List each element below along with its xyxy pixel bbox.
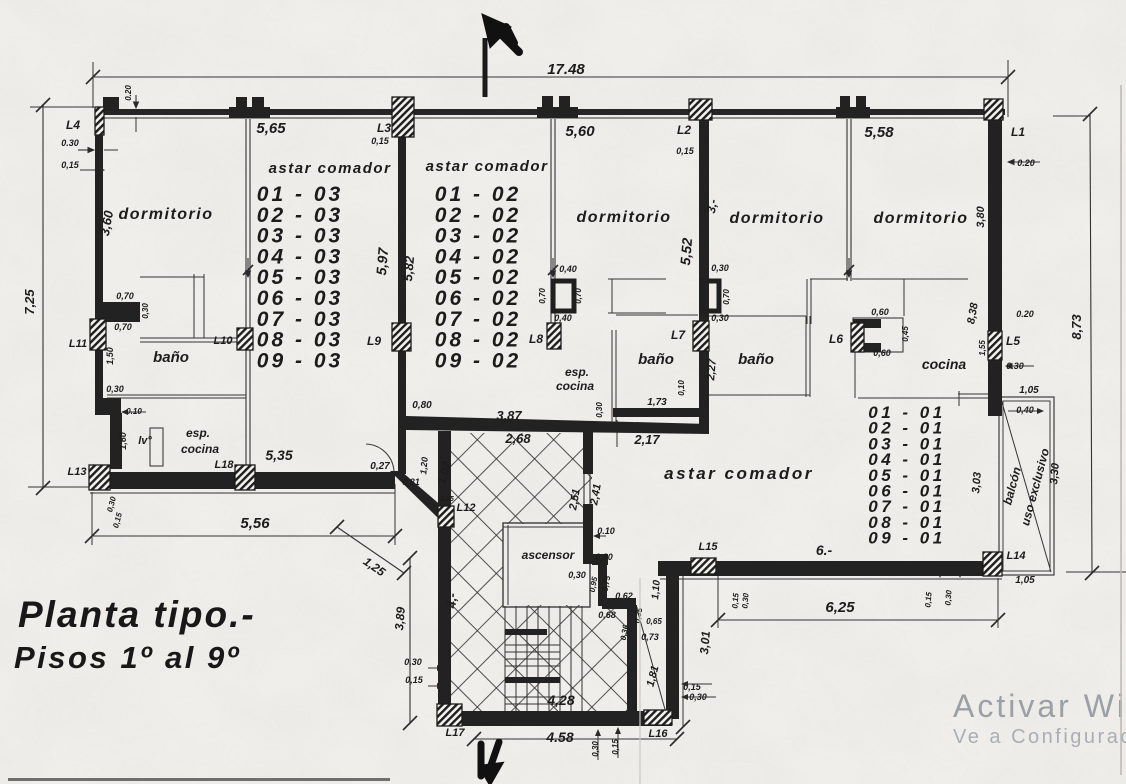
svg-text:L14: L14 [1007, 550, 1026, 562]
svg-text:0,60: 0,60 [873, 348, 891, 358]
svg-text:baño: baño [638, 351, 674, 368]
svg-text:dormitorio: dormitorio [577, 209, 672, 226]
svg-text:dormitorio: dormitorio [730, 210, 825, 227]
svg-text:1,50: 1,50 [105, 347, 115, 365]
svg-text:0,60: 0,60 [871, 307, 889, 317]
svg-text:0,70: 0,70 [114, 322, 132, 332]
svg-text:L12: L12 [457, 502, 476, 514]
svg-text:L13: L13 [68, 466, 87, 478]
svg-text:Ve a Configuración para activa: Ve a Configuración para activar Windows. [953, 726, 1126, 748]
svg-text:04 - 02: 04 - 02 [435, 245, 521, 268]
svg-text:0,73: 0,73 [641, 632, 659, 642]
svg-text:0,30: 0,30 [711, 263, 729, 273]
svg-text:L16: L16 [649, 728, 669, 740]
svg-text:7,25: 7,25 [22, 289, 37, 315]
svg-text:5,97: 5,97 [373, 246, 391, 276]
svg-text:1,05: 1,05 [1015, 575, 1035, 586]
svg-text:cocina: cocina [181, 442, 219, 456]
svg-text:L7: L7 [671, 328, 686, 342]
svg-text:0,30: 0,30 [106, 384, 124, 394]
svg-text:astar comador: astar comador [269, 160, 392, 177]
svg-text:01 - 02: 01 - 02 [435, 183, 521, 206]
svg-text:3,03: 3,03 [970, 472, 984, 494]
svg-text:0,70: 0,70 [116, 291, 134, 301]
svg-text:1,60: 1,60 [118, 432, 128, 450]
svg-text:0.10: 0.10 [597, 526, 615, 536]
svg-text:L5: L5 [1006, 334, 1020, 348]
svg-text:03 - 03: 03 - 03 [257, 225, 343, 248]
svg-text:0,15: 0,15 [61, 160, 80, 170]
svg-text:05 - 02: 05 - 02 [435, 266, 521, 289]
svg-text:0.20: 0.20 [1017, 158, 1035, 168]
svg-text:0,62: 0,62 [615, 591, 633, 601]
svg-text:08 - 02: 08 - 02 [435, 329, 521, 352]
svg-text:5,35: 5,35 [265, 447, 292, 463]
svg-text:esp.: esp. [565, 365, 589, 379]
svg-text:5,56: 5,56 [240, 515, 270, 532]
svg-text:baño: baño [153, 349, 189, 366]
svg-text:1,05: 1,05 [1019, 385, 1039, 396]
svg-text:Activar Windows: Activar Windows [953, 688, 1126, 724]
svg-text:0.30: 0.30 [1006, 361, 1024, 371]
svg-text:0,70: 0,70 [538, 288, 547, 304]
svg-text:0,30: 0,30 [591, 741, 600, 757]
svg-text:09 - 01: 09 - 01 [868, 529, 945, 548]
svg-text:0,27: 0,27 [370, 461, 390, 472]
svg-text:02 - 02: 02 - 02 [435, 204, 521, 227]
svg-text:03 - 02: 03 - 02 [435, 225, 521, 248]
svg-text:0,40: 0,40 [559, 264, 577, 274]
svg-text:5,65: 5,65 [256, 120, 286, 137]
svg-text:1,55: 1,55 [978, 340, 987, 356]
svg-text:06 - 02: 06 - 02 [435, 287, 521, 310]
svg-text:astar comador: astar comador [664, 464, 814, 483]
svg-text:17.48: 17.48 [547, 61, 585, 78]
svg-text:L15: L15 [699, 541, 719, 553]
svg-text:6.-: 6.- [816, 542, 833, 558]
svg-text:L9: L9 [367, 334, 381, 348]
svg-text:Pisos 1º al 9º: Pisos 1º al 9º [14, 640, 241, 675]
svg-text:0.10: 0.10 [126, 407, 142, 416]
svg-text:5,60: 5,60 [565, 123, 595, 140]
svg-text:0,05: 0,05 [440, 496, 454, 503]
svg-text:09 - 03: 09 - 03 [257, 349, 343, 372]
svg-text:2,68: 2,68 [504, 431, 531, 446]
svg-text:0,15: 0,15 [923, 591, 933, 608]
svg-text:0,30: 0,30 [595, 552, 613, 562]
svg-text:0,30: 0,30 [595, 402, 604, 418]
svg-text:0,81: 0,81 [402, 477, 420, 487]
svg-text:L4: L4 [66, 118, 80, 132]
svg-text:0.30: 0.30 [61, 138, 79, 148]
svg-text:0,15: 0,15 [371, 136, 390, 146]
svg-text:L17: L17 [446, 727, 466, 739]
svg-text:0,30: 0,30 [740, 592, 750, 609]
svg-text:4,-: 4,- [443, 592, 459, 609]
svg-text:0,15: 0,15 [730, 592, 740, 609]
svg-text:08 - 03: 08 - 03 [257, 329, 343, 352]
svg-text:0,40: 0,40 [1016, 405, 1034, 415]
svg-text:0,15: 0,15 [676, 146, 695, 156]
svg-text:4,28: 4,28 [546, 692, 574, 708]
svg-text:dormitorio: dormitorio [874, 210, 969, 227]
svg-text:0,45: 0,45 [901, 326, 910, 342]
svg-text:esp.: esp. [186, 426, 210, 440]
svg-text:cocina: cocina [922, 356, 967, 372]
svg-text:0,30: 0,30 [943, 589, 953, 606]
svg-text:L8: L8 [529, 332, 543, 346]
svg-text:0,70: 0,70 [574, 288, 583, 304]
svg-text:07 - 03: 07 - 03 [257, 308, 343, 331]
svg-text:0.20: 0.20 [124, 85, 133, 101]
svg-text:Planta tipo.-: Planta tipo.- [18, 594, 256, 635]
svg-text:09 - 02: 09 - 02 [435, 349, 521, 372]
svg-text:6,25: 6,25 [825, 599, 855, 616]
svg-text:0,80: 0,80 [412, 400, 432, 411]
svg-text:dormitorio: dormitorio [119, 206, 214, 223]
svg-text:L10: L10 [214, 335, 234, 347]
svg-text:0,30: 0,30 [141, 303, 150, 319]
svg-text:3,80: 3,80 [975, 205, 987, 227]
svg-text:baño: baño [738, 351, 774, 368]
svg-text:4.58: 4.58 [545, 729, 573, 745]
svg-text:3,01: 3,01 [697, 630, 713, 655]
svg-text:2,17: 2,17 [633, 432, 660, 447]
svg-text:8,73: 8,73 [1069, 314, 1084, 340]
svg-text:0,30: 0,30 [568, 570, 586, 580]
svg-text:1,20: 1,20 [418, 457, 429, 475]
svg-text:3,30: 3,30 [1048, 462, 1062, 485]
svg-text:astar comador: astar comador [426, 158, 549, 175]
svg-text:0.20: 0.20 [1016, 309, 1034, 319]
svg-text:3,-: 3,- [704, 198, 720, 214]
svg-text:L1: L1 [1011, 125, 1025, 139]
svg-text:5,52: 5,52 [677, 237, 695, 266]
svg-text:3,89: 3,89 [392, 606, 408, 631]
svg-text:0,30: 0,30 [711, 313, 729, 323]
svg-text:L2: L2 [677, 123, 691, 137]
svg-text:0,15: 0,15 [405, 675, 424, 685]
svg-text:3,87: 3,87 [496, 408, 522, 423]
svg-text:0,68: 0,68 [598, 610, 616, 620]
svg-text:lv°: lv° [138, 435, 152, 447]
svg-text:cocina: cocina [556, 379, 594, 393]
svg-text:06 - 03: 06 - 03 [257, 287, 343, 310]
svg-text:0,70: 0,70 [722, 289, 731, 305]
svg-text:04 - 03: 04 - 03 [257, 245, 343, 268]
svg-text:07 - 02: 07 - 02 [435, 308, 521, 331]
svg-text:0,15: 0,15 [611, 739, 620, 755]
svg-text:L11: L11 [69, 338, 87, 350]
svg-text:ascensor: ascensor [522, 548, 576, 562]
svg-text:0,10: 0,10 [677, 380, 686, 396]
svg-text:L18: L18 [215, 459, 235, 471]
svg-text:L3: L3 [377, 121, 391, 135]
svg-text:0,30: 0,30 [404, 657, 422, 667]
svg-text:02 - 03: 02 - 03 [257, 204, 343, 227]
svg-text:5,58: 5,58 [864, 124, 894, 141]
svg-text:1,73: 1,73 [647, 397, 667, 408]
svg-text:0,65: 0,65 [646, 617, 662, 626]
svg-text:01 - 03: 01 - 03 [257, 183, 343, 206]
svg-text:1,10: 1,10 [650, 579, 663, 600]
svg-text:0,40: 0,40 [554, 313, 572, 323]
svg-text:L6: L6 [829, 332, 843, 346]
svg-text:2,27: 2,27 [705, 358, 719, 382]
svg-text:5,82: 5,82 [400, 255, 417, 282]
svg-text:05 - 03: 05 - 03 [257, 266, 343, 289]
